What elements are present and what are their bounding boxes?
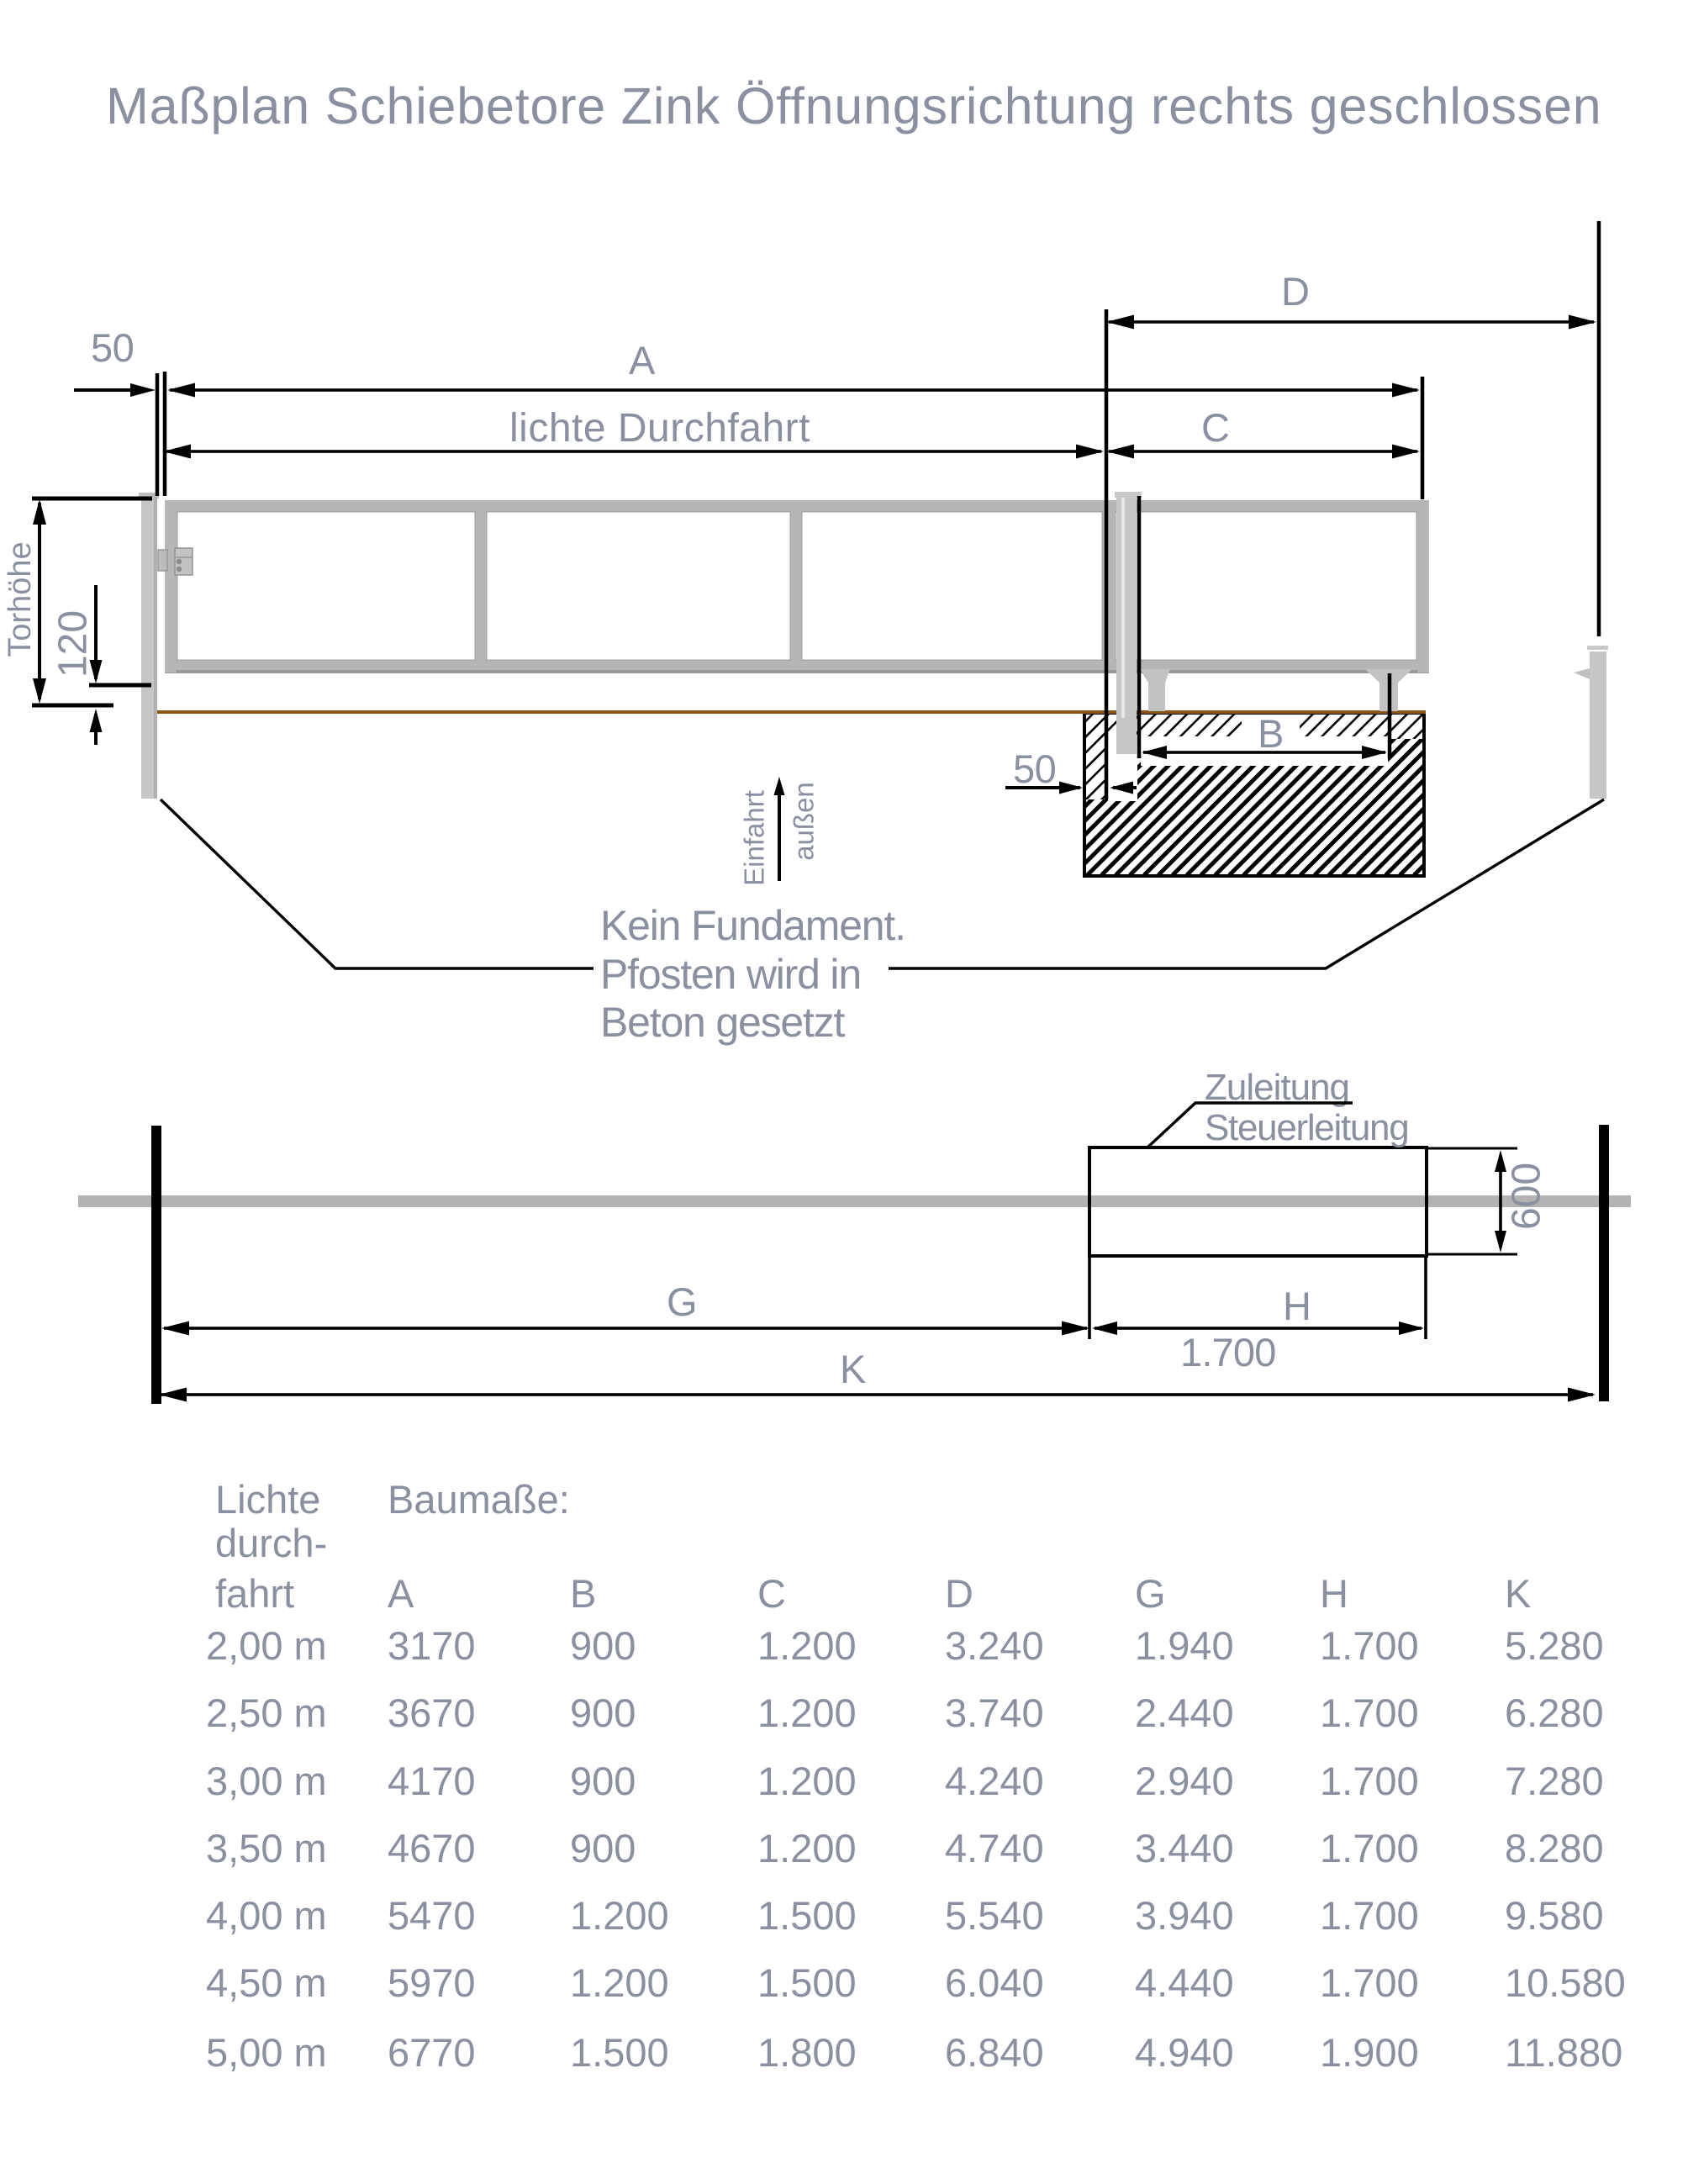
- svg-text:2,50 m: 2,50 m: [206, 1691, 327, 1735]
- svg-text:5.540: 5.540: [945, 1893, 1044, 1938]
- svg-text:Maßplan Schiebetore Zink Öffnu: Maßplan Schiebetore Zink Öffnungsrichtun…: [106, 77, 1602, 135]
- svg-text:2.940: 2.940: [1135, 1759, 1234, 1803]
- svg-text:2.440: 2.440: [1135, 1691, 1234, 1735]
- svg-text:50: 50: [91, 325, 134, 370]
- svg-text:H: H: [1320, 1571, 1348, 1616]
- svg-text:Einfahrt: Einfahrt: [739, 790, 770, 886]
- svg-text:1.500: 1.500: [570, 2030, 669, 2075]
- svg-text:Pfosten wird in: Pfosten wird in: [600, 951, 861, 998]
- svg-text:3,00 m: 3,00 m: [206, 1759, 327, 1803]
- svg-text:6.040: 6.040: [945, 1960, 1044, 2005]
- svg-text:900: 900: [570, 1623, 636, 1668]
- svg-text:G: G: [667, 1279, 698, 1324]
- svg-text:B: B: [1258, 711, 1284, 756]
- svg-text:fahrt: fahrt: [215, 1571, 294, 1616]
- svg-text:4,00 m: 4,00 m: [206, 1893, 327, 1938]
- svg-text:11.880: 11.880: [1505, 2030, 1622, 2075]
- svg-text:D: D: [1281, 269, 1310, 314]
- svg-text:1.800: 1.800: [757, 2030, 857, 2075]
- svg-text:1.700: 1.700: [1320, 1893, 1419, 1938]
- svg-text:1.500: 1.500: [757, 1893, 857, 1938]
- svg-text:Beton gesetzt: Beton gesetzt: [600, 999, 845, 1046]
- svg-text:7.280: 7.280: [1505, 1759, 1604, 1803]
- svg-text:3.440: 3.440: [1135, 1826, 1234, 1870]
- svg-text:A: A: [388, 1571, 414, 1616]
- svg-text:50: 50: [1013, 746, 1056, 791]
- svg-text:3670: 3670: [388, 1691, 476, 1735]
- svg-text:K: K: [1505, 1571, 1531, 1616]
- svg-text:10.580: 10.580: [1505, 1960, 1626, 2005]
- svg-text:1.700: 1.700: [1320, 1960, 1419, 2005]
- svg-text:Steuerleitung: Steuerleitung: [1205, 1107, 1408, 1148]
- svg-text:Baumaße:: Baumaße:: [388, 1477, 570, 1522]
- svg-text:1.200: 1.200: [570, 1893, 669, 1938]
- svg-text:1.700: 1.700: [1320, 1826, 1419, 1870]
- svg-text:900: 900: [570, 1691, 636, 1735]
- svg-text:Lichte: Lichte: [215, 1477, 320, 1522]
- svg-text:außen: außen: [789, 782, 820, 861]
- svg-text:5,00 m: 5,00 m: [206, 2030, 327, 2075]
- svg-text:900: 900: [570, 1826, 636, 1870]
- svg-text:C: C: [1201, 405, 1230, 450]
- svg-text:600: 600: [1505, 1163, 1549, 1230]
- svg-text:4.240: 4.240: [945, 1759, 1044, 1803]
- svg-text:1.700: 1.700: [1320, 1623, 1419, 1668]
- svg-text:6770: 6770: [388, 2030, 476, 2075]
- svg-text:1.200: 1.200: [757, 1826, 857, 1870]
- svg-text:120: 120: [51, 610, 96, 678]
- svg-text:G: G: [1135, 1571, 1166, 1616]
- svg-text:1.200: 1.200: [757, 1759, 857, 1803]
- svg-text:1.200: 1.200: [757, 1623, 857, 1668]
- svg-text:4670: 4670: [388, 1826, 476, 1870]
- svg-text:3.740: 3.740: [945, 1691, 1044, 1735]
- svg-text:9.580: 9.580: [1505, 1893, 1604, 1938]
- svg-text:3,50 m: 3,50 m: [206, 1826, 327, 1870]
- svg-text:4.440: 4.440: [1135, 1960, 1234, 2005]
- svg-text:3.240: 3.240: [945, 1623, 1044, 1668]
- svg-text:1.900: 1.900: [1320, 2030, 1419, 2075]
- svg-text:durch-: durch-: [215, 1521, 327, 1565]
- svg-text:1.200: 1.200: [757, 1691, 857, 1735]
- svg-text:B: B: [570, 1571, 596, 1616]
- svg-text:4.940: 4.940: [1135, 2030, 1234, 2075]
- svg-text:5970: 5970: [388, 1960, 476, 2005]
- svg-text:3.940: 3.940: [1135, 1893, 1234, 1938]
- svg-text:1.700: 1.700: [1180, 1330, 1276, 1374]
- svg-text:1.500: 1.500: [757, 1960, 857, 2005]
- svg-text:6.280: 6.280: [1505, 1691, 1604, 1735]
- svg-text:4.740: 4.740: [945, 1826, 1044, 1870]
- svg-text:A: A: [629, 338, 656, 382]
- svg-text:Kein Fundament.: Kein Fundament.: [600, 902, 905, 949]
- svg-text:C: C: [757, 1571, 786, 1616]
- svg-text:1.940: 1.940: [1135, 1623, 1234, 1668]
- svg-text:900: 900: [570, 1759, 636, 1803]
- svg-text:D: D: [945, 1571, 973, 1616]
- svg-text:1.700: 1.700: [1320, 1759, 1419, 1803]
- svg-text:2,00 m: 2,00 m: [206, 1623, 327, 1668]
- svg-text:4,50 m: 4,50 m: [206, 1960, 327, 2005]
- svg-text:1.700: 1.700: [1320, 1691, 1419, 1735]
- svg-text:Torhöhe: Torhöhe: [3, 541, 38, 657]
- svg-text:3170: 3170: [388, 1623, 476, 1668]
- svg-text:K: K: [840, 1347, 866, 1391]
- svg-text:1.200: 1.200: [570, 1960, 669, 2005]
- svg-text:4170: 4170: [388, 1759, 476, 1803]
- svg-text:8.280: 8.280: [1505, 1826, 1604, 1870]
- svg-text:5.280: 5.280: [1505, 1623, 1604, 1668]
- svg-text:H: H: [1283, 1284, 1311, 1328]
- svg-text:6.840: 6.840: [945, 2030, 1044, 2075]
- svg-text:5470: 5470: [388, 1893, 476, 1938]
- svg-text:lichte Durchfahrt: lichte Durchfahrt: [509, 406, 810, 451]
